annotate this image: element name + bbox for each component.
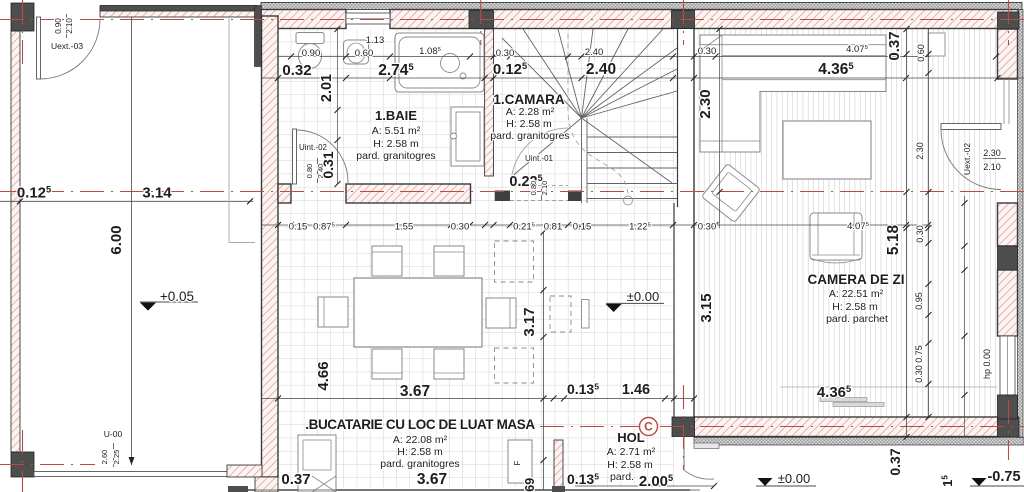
svg-text:A: 5.51 m²: A: 5.51 m² xyxy=(372,125,421,137)
svg-text:0.30: 0.30 xyxy=(496,48,515,59)
svg-text:Uext.-03: Uext.-03 xyxy=(51,41,83,51)
svg-text:0.37: 0.37 xyxy=(886,31,903,60)
svg-text:0.30: 0.30 xyxy=(451,222,470,233)
svg-text:1.BAIE: 1.BAIE xyxy=(375,108,417,123)
svg-text:0.31: 0.31 xyxy=(320,151,336,178)
svg-text:0.81: 0.81 xyxy=(544,222,563,233)
svg-text:3.15: 3.15 xyxy=(698,293,715,322)
svg-text:0.37: 0.37 xyxy=(887,448,903,475)
svg-text:2.40: 2.40 xyxy=(585,47,604,58)
svg-text:±0.00: ±0.00 xyxy=(627,289,659,304)
svg-text:3.67: 3.67 xyxy=(400,383,430,400)
svg-text:2.30: 2.30 xyxy=(697,89,714,118)
svg-text:2.01: 2.01 xyxy=(319,74,335,102)
svg-text:0.15: 0.15 xyxy=(573,222,592,233)
svg-text:2.30: 2.30 xyxy=(915,142,925,160)
svg-text:4.66: 4.66 xyxy=(315,361,332,390)
svg-text:A: 2.71 m²: A: 2.71 m² xyxy=(607,446,656,458)
svg-text:0.15: 0.15 xyxy=(289,222,308,233)
svg-text:A: 2.28 m²: A: 2.28 m² xyxy=(506,106,555,118)
svg-text:C: C xyxy=(644,420,653,434)
svg-text:H: 2.58 m: H: 2.58 m xyxy=(607,459,653,471)
svg-text:.BUCATARIE CU LOC DE LUAT MASA: .BUCATARIE CU LOC DE LUAT MASA xyxy=(305,417,535,432)
svg-text:U-00: U-00 xyxy=(104,429,123,439)
svg-text:2.25: 2.25 xyxy=(112,450,121,465)
svg-text:2.40: 2.40 xyxy=(586,61,616,78)
svg-text:+0.05: +0.05 xyxy=(160,289,194,304)
svg-text:pard.: pard. xyxy=(610,471,634,483)
svg-text:0.30: 0.30 xyxy=(915,225,925,243)
svg-text:H: 2.58 m: H: 2.58 m xyxy=(506,118,552,130)
svg-text:HOL: HOL xyxy=(617,430,645,445)
svg-text:0.80: 0.80 xyxy=(305,164,314,179)
svg-text:F: F xyxy=(513,460,522,465)
svg-text:0.80: 0.80 xyxy=(529,181,538,196)
svg-text:-0.75: -0.75 xyxy=(987,469,1020,485)
svg-text:pard. granitogres: pard. granitogres xyxy=(356,150,435,162)
svg-text:0.60: 0.60 xyxy=(355,48,374,59)
svg-text:H: 2.58 m: H: 2.58 m xyxy=(373,138,419,150)
svg-text:CAMERA DE ZI: CAMERA DE ZI xyxy=(808,272,905,287)
svg-text:Uext.-02: Uext.-02 xyxy=(962,143,972,175)
svg-text:A: 22.08 m²: A: 22.08 m² xyxy=(393,434,448,446)
svg-text:0.30: 0.30 xyxy=(698,222,717,233)
svg-text:0.37: 0.37 xyxy=(281,471,310,488)
svg-text:0.90: 0.90 xyxy=(302,48,321,59)
svg-text:0.69: 0.69 xyxy=(523,478,537,492)
svg-text:3.67: 3.67 xyxy=(417,471,447,488)
svg-text:3.14: 3.14 xyxy=(142,185,172,202)
svg-text:1.CAMARA: 1.CAMARA xyxy=(493,92,565,107)
svg-text:Uint.-02: Uint.-02 xyxy=(299,143,328,152)
svg-text:±0.00: ±0.00 xyxy=(778,471,810,486)
svg-text:hp 0.00: hp 0.00 xyxy=(982,349,992,379)
svg-text:2.30: 2.30 xyxy=(983,148,1001,158)
svg-text:0.32: 0.32 xyxy=(282,62,311,79)
svg-text:2.10: 2.10 xyxy=(540,181,549,196)
svg-text:0.30: 0.30 xyxy=(698,46,717,57)
svg-text:Uint.-01: Uint.-01 xyxy=(525,154,554,163)
svg-text:pard. parchet: pard. parchet xyxy=(826,313,888,325)
svg-text:1.55: 1.55 xyxy=(395,222,414,233)
svg-text:6.00: 6.00 xyxy=(108,225,125,254)
svg-text:0.60: 0.60 xyxy=(916,44,926,62)
svg-text:A: 22.51 m²: A: 22.51 m² xyxy=(829,288,884,300)
svg-text:0.30 0.75: 0.30 0.75 xyxy=(914,345,924,383)
svg-text:H: 2.58 m: H: 2.58 m xyxy=(397,446,443,458)
svg-text:2.10: 2.10 xyxy=(65,18,74,34)
svg-text:1.46: 1.46 xyxy=(622,382,650,398)
svg-text:3.17: 3.17 xyxy=(521,307,538,336)
svg-text:5.18: 5.18 xyxy=(885,225,902,256)
svg-text:2.60: 2.60 xyxy=(100,450,109,465)
svg-text:2.10: 2.10 xyxy=(983,162,1001,172)
svg-text:0.95: 0.95 xyxy=(914,292,924,310)
svg-text:pard. granitogres: pard. granitogres xyxy=(490,130,569,142)
svg-text:1.13: 1.13 xyxy=(366,35,385,46)
svg-text:H: 2.58 m: H: 2.58 m xyxy=(832,301,878,313)
svg-text:pard. granitogres: pard. granitogres xyxy=(380,458,459,470)
svg-text:0.90: 0.90 xyxy=(54,18,63,34)
